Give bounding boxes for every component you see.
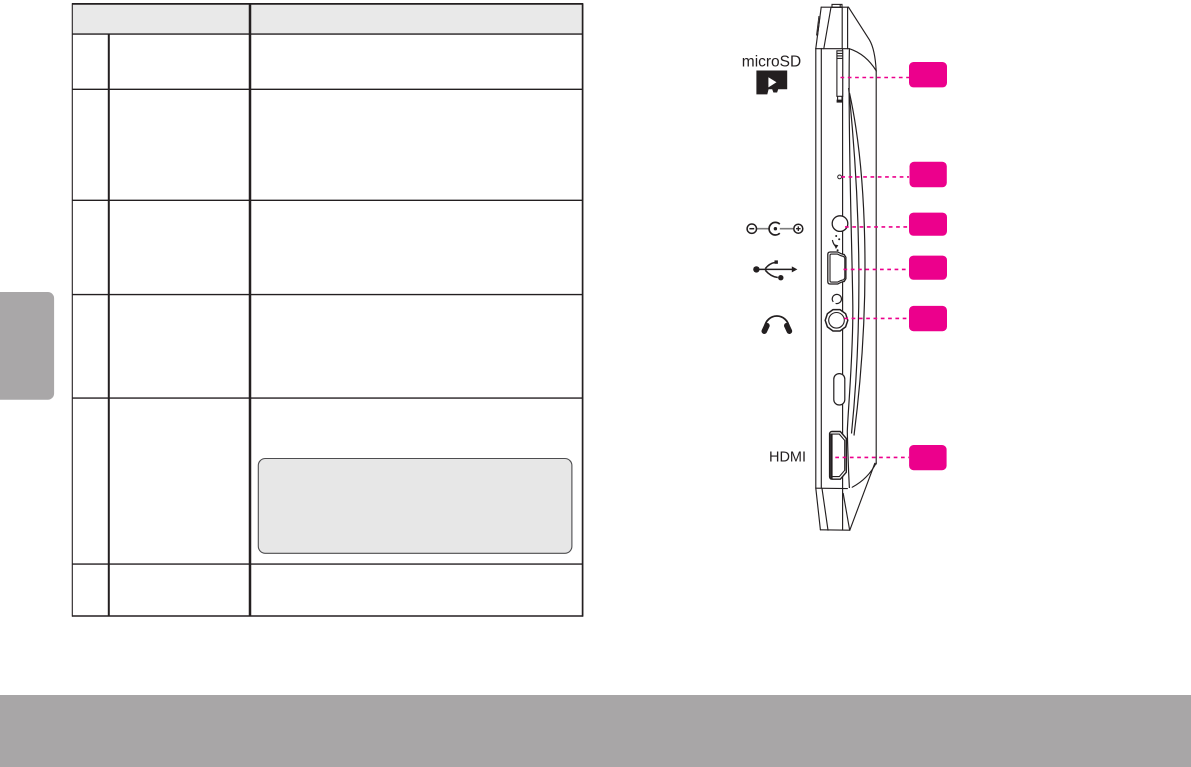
svg-text:microSD: microSD (742, 54, 801, 71)
svg-text:HDMI: HDMI (769, 450, 806, 466)
